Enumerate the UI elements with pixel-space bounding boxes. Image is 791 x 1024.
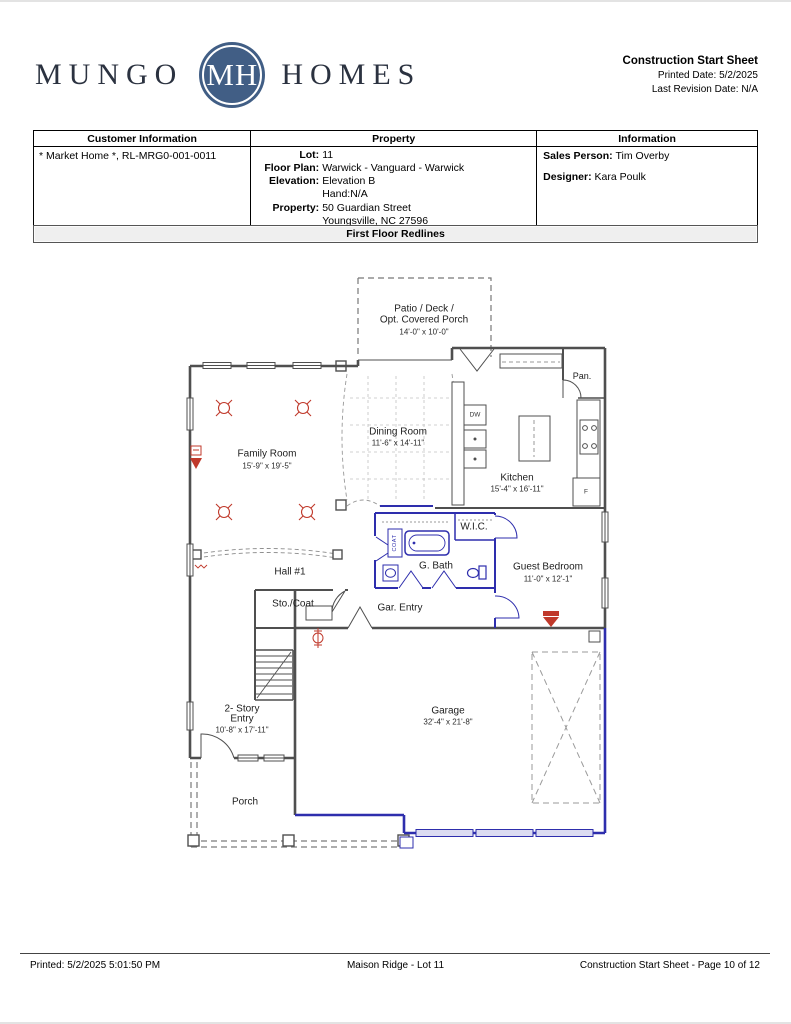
label-fridge: F (584, 489, 588, 496)
page-header: MUNGO MH HOMES Construction Start Sheet … (35, 42, 758, 108)
recessed-lights (216, 400, 315, 520)
footer-page-number: Construction Start Sheet - Page 10 of 12 (580, 960, 760, 971)
designer-value: Kara Poulk (595, 171, 646, 183)
info-table-header-row: Customer Information Property Informatio… (34, 131, 758, 147)
garage-stoop (400, 837, 413, 848)
logo-word-mungo: MUNGO (35, 58, 183, 92)
room-label-patio-2: Opt. Covered Porch (380, 315, 468, 326)
interior-walls (255, 348, 605, 700)
room-label-porch: Porch (232, 797, 258, 808)
information-cell: Sales Person: Tim Overby Designer: Kara … (537, 147, 758, 231)
col-header-property: Property (251, 131, 537, 147)
room-label-garage-entry: Gar. Entry (377, 603, 422, 614)
info-table-body-row: * Market Home *, RL-MRG0-001-0011 Lot:11… (34, 147, 758, 231)
redline-scribble (195, 565, 207, 568)
room-label-kitchen: Kitchen (500, 473, 533, 484)
room-label-garage: Garage (431, 706, 464, 717)
redline-plumbing-symbol (313, 628, 323, 648)
room-label-dining: Dining Room (369, 427, 427, 438)
hall-arch-dashes (197, 549, 337, 559)
room-dims-entry: 10'-8" x 17'-11" (215, 726, 268, 735)
porch-outline (191, 762, 409, 847)
sales-person-row: Sales Person: Tim Overby (543, 150, 751, 164)
sales-person-value: Tim Overby (616, 150, 670, 162)
room-label-guest-bath: G. Bath (419, 561, 453, 572)
room-label-storage-coat: Sto./Coat (272, 599, 314, 610)
room-label-pantry: Pan. (573, 371, 592, 381)
bath-fixtures-redline (383, 529, 486, 581)
stairs (255, 650, 293, 700)
property-row-elevation: Elevation:Elevation B (255, 175, 532, 188)
room-label-patio: Patio / Deck / (394, 304, 453, 315)
toilet-icon (468, 569, 479, 578)
mungo-homes-logo: MUNGO MH HOMES (35, 42, 421, 108)
room-label-guest-bedroom: Guest Bedroom (513, 562, 583, 573)
col-header-customer-information: Customer Information (34, 131, 251, 147)
logo-monogram: MH (202, 45, 262, 105)
property-row-lot: Lot:11 (255, 149, 532, 162)
last-revision-value: N/A (741, 84, 758, 95)
info-table: Customer Information Property Informatio… (33, 130, 758, 231)
label-coat-closet: COAT (392, 535, 398, 552)
room-label-family: Family Room (238, 449, 297, 460)
property-row-address: Property:50 Guardian Street (255, 202, 532, 215)
sink-icon (386, 569, 396, 577)
room-dims-dining: 11'-6" x 14'-11" (372, 439, 424, 448)
recessed-light-icon (216, 504, 232, 520)
arch-posts (192, 361, 346, 559)
room-dims-kitchen: 15'-4" x 16'-11" (490, 485, 543, 494)
property-row-hand: Hand:N/A (255, 188, 532, 201)
redline-marker-guest-bedroom (543, 611, 559, 627)
recessed-light-icon (216, 400, 232, 416)
room-dims-family: 15'-9" x 19'-5" (242, 462, 291, 471)
customer-information-cell: * Market Home *, RL-MRG0-001-0011 (34, 147, 251, 231)
garage-dashed-storage-area (532, 652, 600, 803)
garage-door-panels (400, 830, 593, 849)
room-dims-patio: 14'-0" x 10'-0" (399, 328, 448, 337)
redline-walls-garage (295, 628, 605, 833)
col-header-information: Information (537, 131, 758, 147)
last-revision-line: Last Revision Date: N/A (623, 83, 758, 97)
range-icon (580, 420, 598, 454)
section-title-bar: First Floor Redlines (33, 225, 758, 243)
attic-access-box (589, 631, 600, 642)
property-cell: Lot:11 Floor Plan:Warwick - Vanguard - W… (251, 147, 537, 231)
room-label-entry-2: Entry (230, 714, 253, 725)
document-meta: Construction Start Sheet Printed Date: 5… (623, 53, 758, 97)
property-row-floor-plan: Floor Plan:Warwick - Vanguard - Warwick (255, 162, 532, 175)
footer-divider (20, 953, 770, 954)
document-title: Construction Start Sheet (623, 53, 758, 69)
room-label-wic: W.I.C. (460, 522, 487, 533)
page-top-edge (0, 0, 791, 2)
printed-date-line: Printed Date: 5/2/2025 (623, 69, 758, 83)
floor-plan-drawing (0, 250, 791, 895)
redline-marker-left-wall (190, 446, 202, 469)
room-label-hall: Hall #1 (274, 567, 305, 578)
room-dims-guest-bedroom: 11'-0" x 12'-1" (524, 575, 573, 584)
room-dims-garage: 32'-4" x 21'-8" (423, 718, 472, 727)
recessed-light-icon (295, 400, 311, 416)
logo-word-homes: HOMES (281, 58, 421, 92)
label-dishwasher: DW (470, 412, 481, 419)
floor-plan: Patio / Deck / Opt. Covered Porch 14'-0"… (0, 250, 791, 895)
printed-date-value: 5/2/2025 (719, 70, 758, 81)
recessed-light-icon (299, 504, 315, 520)
logo-mh-monogram-circle: MH (199, 42, 265, 108)
designer-row: Designer: Kara Poulk (543, 171, 751, 185)
